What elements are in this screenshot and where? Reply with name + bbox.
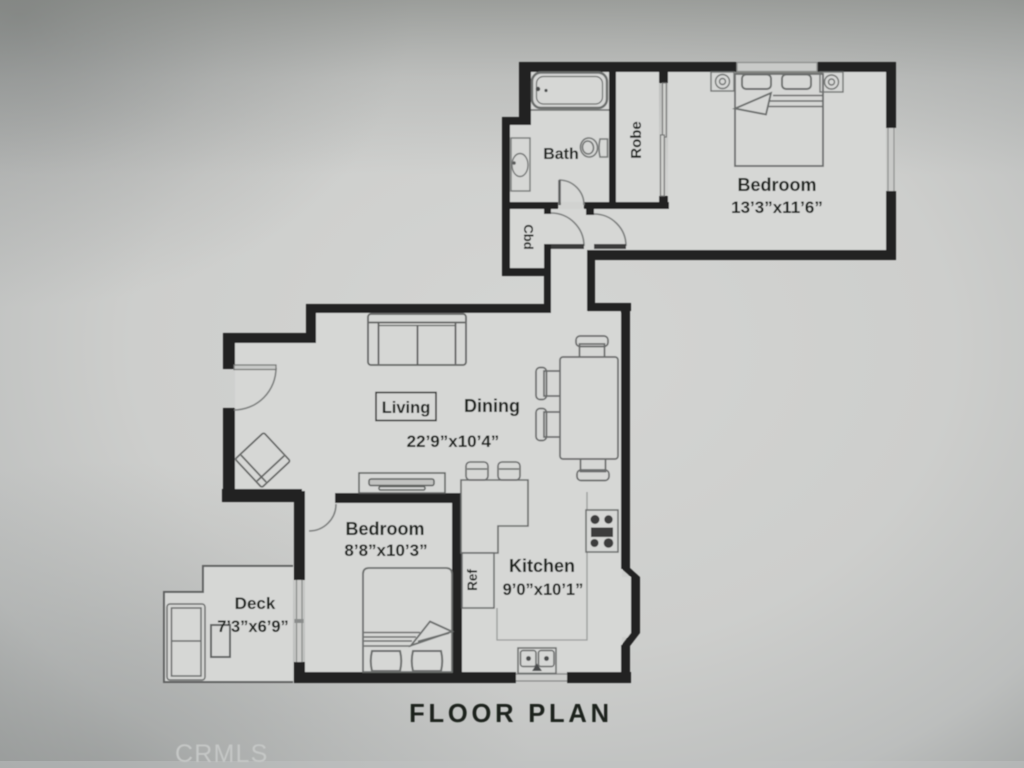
svg-text:CRMLS: CRMLS: [175, 740, 269, 768]
svg-text:Ref: Ref: [465, 569, 480, 591]
svg-text:13’3”x11’6”: 13’3”x11’6”: [731, 198, 823, 217]
svg-text:8’8”x10’3”: 8’8”x10’3”: [344, 541, 427, 560]
svg-text:FLOOR PLAN: FLOOR PLAN: [409, 700, 613, 728]
svg-text:Deck: Deck: [235, 594, 276, 613]
svg-text:9’0”x10’1”: 9’0”x10’1”: [503, 581, 584, 599]
svg-text:Cbd: Cbd: [521, 224, 536, 249]
svg-text:Dining: Dining: [464, 396, 520, 416]
svg-text:Bath: Bath: [543, 146, 579, 163]
svg-text:22’9”x10’4”: 22’9”x10’4”: [407, 432, 500, 451]
svg-text:Bedroom: Bedroom: [737, 175, 816, 195]
svg-text:7’3”x6’9”: 7’3”x6’9”: [217, 618, 289, 636]
svg-text:Robe: Robe: [628, 121, 645, 159]
svg-text:Living: Living: [382, 399, 431, 417]
svg-text:Kitchen: Kitchen: [509, 556, 575, 576]
svg-text:Bedroom: Bedroom: [345, 519, 424, 539]
